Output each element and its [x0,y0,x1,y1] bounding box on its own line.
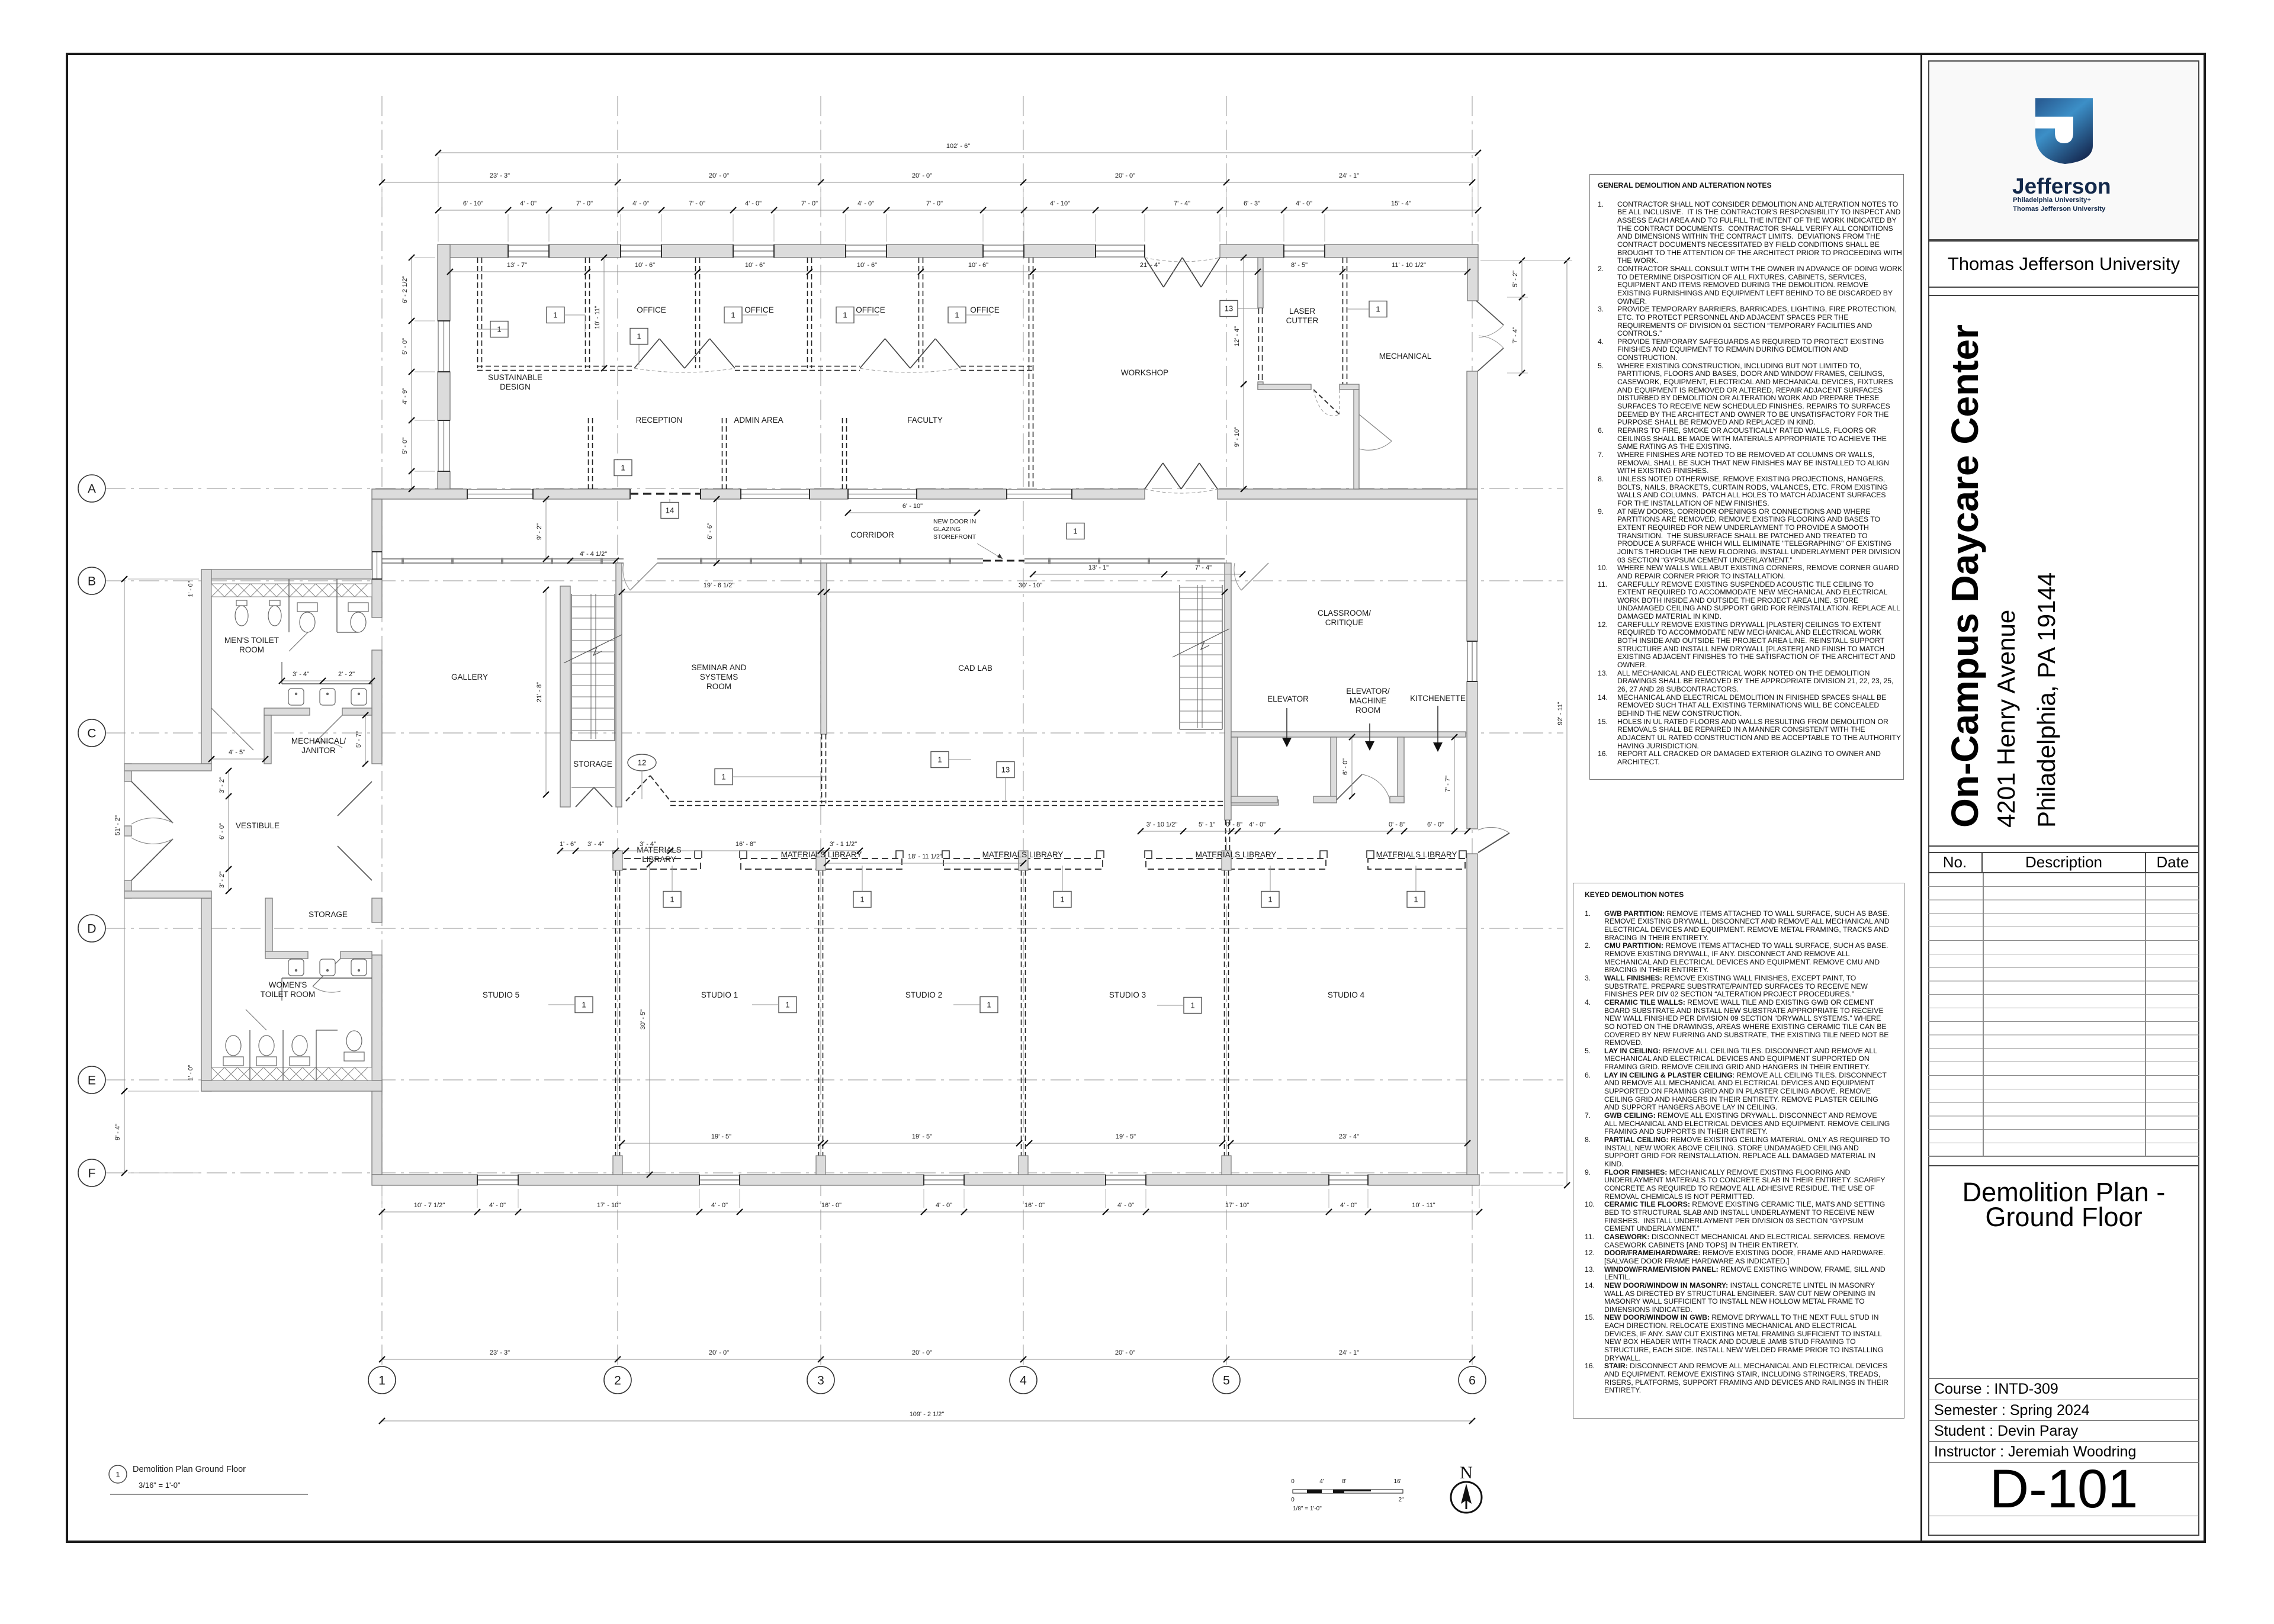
svg-text:NEW DOOR IN: NEW DOOR IN [933,518,976,525]
svg-text:10' - 11": 10' - 11" [594,305,601,329]
svg-text:Demolition Plan Ground Floor: Demolition Plan Ground Floor [133,1465,246,1474]
svg-text:3' - 4": 3' - 4" [293,671,309,678]
svg-text:ELEVATOR/: ELEVATOR/ [1346,687,1390,696]
svg-text:OFFICE: OFFICE [970,305,1000,314]
svg-text:4' - 0": 4' - 0" [520,200,537,207]
svg-text:5: 5 [1223,1374,1230,1388]
svg-text:MEN'S TOILET: MEN'S TOILET [224,636,279,645]
svg-text:6' - 2 1/2": 6' - 2 1/2" [402,276,409,303]
svg-text:CUTTER: CUTTER [1286,316,1319,325]
svg-text:6' - 0": 6' - 0" [1427,821,1444,828]
svg-text:3' - 10 1/2": 3' - 10 1/2" [1146,821,1178,828]
svg-text:6' - 10": 6' - 10" [463,200,483,207]
svg-text:3/16" = 1'-0": 3/16" = 1'-0" [139,1481,181,1490]
svg-text:7' - 4": 7' - 4" [1195,564,1212,571]
svg-text:F: F [88,1167,96,1181]
svg-text:4' - 0": 4' - 0" [745,200,762,207]
svg-text:4' - 0": 4' - 0" [1296,200,1312,207]
svg-text:16' - 8": 16' - 8" [735,841,756,848]
svg-text:STOREFRONT: STOREFRONT [933,533,977,541]
svg-text:3: 3 [817,1374,824,1388]
svg-text:SYSTEMS: SYSTEMS [700,673,738,681]
svg-text:7' - 0": 7' - 0" [926,200,943,207]
svg-text:MATERIALS LIBRARY: MATERIALS LIBRARY [982,850,1064,859]
svg-text:6' - 0": 6' - 0" [219,823,226,840]
svg-text:4' - 0": 4' - 0" [632,200,649,207]
svg-text:7' - 7": 7' - 7" [1444,776,1451,792]
svg-text:1: 1 [955,311,959,320]
svg-text:10' - 6": 10' - 6" [968,262,988,269]
svg-text:WOMEN'S: WOMEN'S [269,980,307,989]
svg-text:SEMINAR AND: SEMINAR AND [691,663,746,672]
svg-text:1: 1 [553,311,557,320]
svg-text:GLAZING: GLAZING [933,526,961,533]
svg-text:3' - 1 1/2": 3' - 1 1/2" [830,841,857,848]
svg-text:3' - 2": 3' - 2" [219,872,226,888]
svg-text:1: 1 [987,1001,991,1009]
svg-text:4' - 10": 4' - 10" [1050,200,1070,207]
svg-text:19' - 5": 19' - 5" [912,1133,932,1140]
svg-text:1: 1 [1414,895,1418,904]
svg-text:STUDIO 5: STUDIO 5 [483,991,519,999]
svg-text:TOILET ROOM: TOILET ROOM [261,990,316,999]
svg-text:ROOM: ROOM [1356,706,1380,715]
svg-text:13: 13 [1225,304,1233,313]
svg-text:92' - 11": 92' - 11" [1557,702,1564,725]
svg-text:CRITIQUE: CRITIQUE [1325,618,1364,627]
svg-text:9' - 4": 9' - 4" [114,1124,121,1140]
svg-text:CORRIDOR: CORRIDOR [850,530,894,539]
svg-text:7' - 4": 7' - 4" [1174,200,1190,207]
svg-text:E: E [88,1074,96,1088]
svg-text:1: 1 [621,464,625,472]
svg-text:8': 8' [1342,1478,1347,1485]
svg-text:STUDIO 1: STUDIO 1 [701,991,738,999]
svg-text:12: 12 [638,758,646,767]
svg-text:Jefferson: Jefferson [2012,174,2111,198]
svg-text:1: 1 [582,1001,586,1009]
svg-text:6' - 3": 6' - 3" [1244,200,1260,207]
svg-text:STUDIO 4: STUDIO 4 [1328,991,1365,999]
svg-text:1: 1 [1376,305,1380,314]
svg-text:7' - 4": 7' - 4" [1512,327,1519,343]
svg-text:CAD LAB: CAD LAB [958,664,993,673]
svg-text:6: 6 [1469,1374,1476,1388]
svg-text:1: 1 [637,332,641,341]
svg-text:14: 14 [666,506,674,515]
svg-text:7' - 0": 7' - 0" [576,200,593,207]
svg-text:ADMIN AREA: ADMIN AREA [734,416,783,425]
svg-text:RECEPTION: RECEPTION [636,416,683,425]
svg-text:MECHANICAL: MECHANICAL [1379,352,1432,361]
svg-text:GALLERY: GALLERY [451,673,488,681]
svg-text:12' - 4": 12' - 4" [1234,326,1241,346]
svg-text:19' - 6 1/2": 19' - 6 1/2" [704,582,735,589]
svg-text:0' - 8": 0' - 8" [1389,821,1405,828]
svg-text:FACULTY: FACULTY [907,416,943,425]
svg-text:ELEVATOR: ELEVATOR [1267,694,1309,703]
svg-text:1: 1 [843,311,847,320]
svg-text:KITCHENETTE: KITCHENETTE [1410,694,1466,703]
svg-text:7' - 0": 7' - 0" [801,200,818,207]
svg-text:ROOM: ROOM [239,645,264,654]
svg-text:MATERIALS LIBRARY: MATERIALS LIBRARY [781,850,862,859]
svg-text:11' - 10 1/2": 11' - 10 1/2" [1392,262,1426,269]
svg-text:8' - 5": 8' - 5" [1291,262,1308,269]
svg-text:1: 1 [1268,895,1272,904]
svg-text:N: N [1460,1463,1473,1482]
svg-text:4' - 5": 4' - 5" [229,749,245,756]
svg-text:4' - 9": 4' - 9" [402,388,409,404]
svg-text:10' - 6": 10' - 6" [635,262,655,269]
svg-text:4' - 0": 4' - 0" [489,1202,506,1209]
svg-text:MATERIALS LIBRARY: MATERIALS LIBRARY [1376,850,1457,859]
svg-text:5' - 1": 5' - 1" [1199,821,1215,828]
svg-text:10' - 6": 10' - 6" [857,262,877,269]
svg-text:1: 1 [785,1001,789,1009]
svg-text:LIBRARY: LIBRARY [642,855,676,864]
svg-text:21' - 4": 21' - 4" [1140,262,1160,269]
svg-text:109' - 2 1/2": 109' - 2 1/2" [910,1411,945,1418]
svg-text:18' - 11 1/2": 18' - 11 1/2" [908,853,942,860]
svg-text:4' - 0": 4' - 0" [936,1202,952,1209]
svg-text:20' - 0": 20' - 0" [709,172,729,179]
svg-text:0' - 8": 0' - 8" [1226,821,1242,828]
svg-text:10' - 7 1/2": 10' - 7 1/2" [414,1202,445,1209]
svg-text:13' - 7": 13' - 7" [507,262,527,269]
svg-text:24' - 1": 24' - 1" [1339,1349,1359,1356]
svg-text:17' - 10": 17' - 10" [597,1202,621,1209]
svg-text:A: A [88,483,96,496]
svg-text:Philadelphia University+: Philadelphia University+ [2013,197,2091,204]
svg-text:10' - 11": 10' - 11" [1412,1202,1435,1209]
svg-text:1' - 0": 1' - 0" [187,581,194,597]
svg-text:4' - 4 1/2": 4' - 4 1/2" [580,551,607,558]
svg-text:MATERIALS LIBRARY: MATERIALS LIBRARY [1196,850,1277,859]
svg-text:Thomas Jefferson University: Thomas Jefferson University [2013,205,2106,213]
svg-text:DESIGN: DESIGN [500,382,531,391]
svg-text:2' - 2": 2' - 2" [338,671,355,678]
svg-text:1: 1 [115,1470,120,1479]
svg-text:OFFICE: OFFICE [744,305,774,314]
svg-text:13: 13 [1001,766,1010,774]
svg-text:1' - 6": 1' - 6" [560,841,576,848]
svg-text:20' - 0": 20' - 0" [1115,172,1135,179]
svg-text:20' - 0": 20' - 0" [912,1349,932,1356]
svg-text:1: 1 [721,773,725,782]
svg-text:1: 1 [860,895,864,904]
svg-text:STUDIO 2: STUDIO 2 [905,991,942,999]
svg-text:CLASSROOM/: CLASSROOM/ [1318,609,1371,618]
svg-text:16' - 0": 16' - 0" [1024,1202,1045,1209]
svg-text:0: 0 [1291,1497,1295,1503]
svg-text:16': 16' [1393,1478,1401,1485]
svg-text:1: 1 [731,311,735,320]
svg-text:4' - 0": 4' - 0" [1117,1202,1134,1209]
svg-text:LASER: LASER [1289,307,1316,316]
svg-text:4' - 0": 4' - 0" [1249,821,1266,828]
svg-text:51' - 2": 51' - 2" [114,815,121,835]
svg-text:15' - 4": 15' - 4" [1391,200,1411,207]
svg-text:VESTIBULE: VESTIBULE [236,821,280,830]
svg-text:5' - 2": 5' - 2" [1512,271,1519,287]
svg-text:19' - 5": 19' - 5" [1116,1133,1136,1140]
svg-text:23' - 3": 23' - 3" [490,172,510,179]
svg-text:5' - 7": 5' - 7" [355,731,362,748]
svg-text:1: 1 [1073,527,1077,536]
svg-text:9' - 2": 9' - 2" [536,523,543,540]
svg-text:6' - 0": 6' - 0" [1342,758,1349,775]
svg-text:21' - 8": 21' - 8" [536,682,543,702]
svg-text:7' - 0": 7' - 0" [689,200,705,207]
svg-text:30' - 10": 30' - 10" [1019,582,1042,589]
svg-text:102' - 6": 102' - 6" [946,143,970,150]
svg-text:4: 4 [1020,1374,1027,1388]
svg-text:19' - 5": 19' - 5" [711,1133,731,1140]
svg-text:1: 1 [670,895,674,904]
svg-text:MECHANICAL/: MECHANICAL/ [291,737,346,745]
svg-text:4': 4' [1319,1478,1324,1485]
svg-text:3' - 4": 3' - 4" [640,841,656,848]
svg-text:4' - 0": 4' - 0" [711,1202,728,1209]
svg-text:B: B [88,575,96,589]
svg-text:1: 1 [1190,1001,1194,1010]
svg-text:C: C [87,727,96,741]
svg-text:1: 1 [937,755,942,764]
svg-text:ROOM: ROOM [706,682,731,691]
svg-text:16' - 0": 16' - 0" [821,1202,841,1209]
svg-text:6' - 10": 6' - 10" [902,503,923,510]
svg-text:17' - 10": 17' - 10" [1225,1202,1249,1209]
svg-text:1: 1 [1060,895,1064,904]
svg-text:OFFICE: OFFICE [856,305,885,314]
svg-text:1' - 0": 1' - 0" [187,1065,194,1080]
svg-text:23' - 4": 23' - 4" [1339,1133,1359,1140]
svg-text:STORAGE: STORAGE [573,760,612,768]
svg-text:10' - 6": 10' - 6" [745,262,765,269]
svg-text:0: 0 [1291,1478,1295,1485]
svg-text:D: D [87,922,96,936]
svg-text:20' - 0": 20' - 0" [709,1349,729,1356]
svg-text:5' - 0": 5' - 0" [402,438,409,454]
svg-text:3' - 2": 3' - 2" [219,777,226,793]
svg-text:1: 1 [378,1374,386,1388]
svg-text:30' - 5": 30' - 5" [640,1009,647,1030]
svg-text:1/8" = 1'-0": 1/8" = 1'-0" [1293,1506,1322,1512]
svg-text:STORAGE: STORAGE [309,910,348,919]
svg-text:3' - 4": 3' - 4" [587,841,604,848]
svg-text:24' - 1": 24' - 1" [1339,172,1359,179]
svg-text:MACHINE: MACHINE [1350,696,1386,705]
svg-text:4' - 0": 4' - 0" [1340,1202,1357,1209]
svg-text:20' - 0": 20' - 0" [912,172,932,179]
svg-text:6' - 6": 6' - 6" [706,523,714,539]
svg-text:13' - 1": 13' - 1" [1088,564,1109,571]
svg-text:STUDIO 3: STUDIO 3 [1109,991,1146,999]
svg-text:JANITOR: JANITOR [301,746,336,755]
svg-text:20' - 0": 20' - 0" [1115,1349,1135,1356]
svg-text:9' - 10": 9' - 10" [1234,427,1241,447]
svg-text:23' - 3": 23' - 3" [490,1349,510,1356]
svg-text:2: 2 [614,1374,621,1388]
svg-text:SUSTAINABLE: SUSTAINABLE [488,373,542,382]
svg-text:4' - 0": 4' - 0" [857,200,874,207]
svg-text:OFFICE: OFFICE [637,305,666,314]
svg-text:WORKSHOP: WORKSHOP [1121,368,1168,377]
svg-text:2": 2" [1398,1497,1404,1503]
svg-text:5' - 0": 5' - 0" [402,338,409,355]
